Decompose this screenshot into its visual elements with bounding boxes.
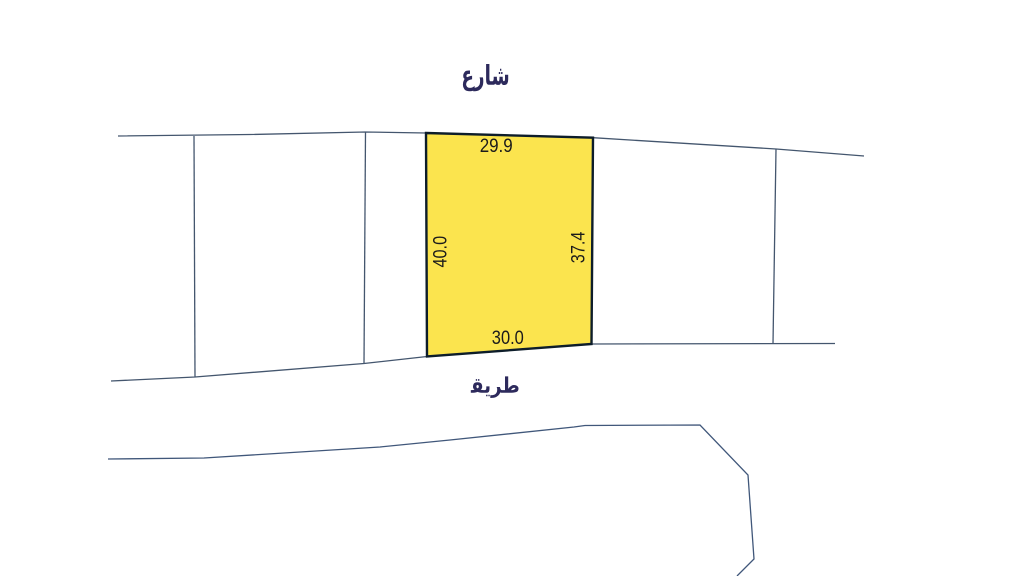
svg-text:29.9: 29.9 (480, 135, 513, 157)
svg-text:40.0: 40.0 (430, 236, 452, 268)
svg-text:30.0: 30.0 (492, 327, 524, 349)
svg-text:37.4: 37.4 (567, 231, 589, 263)
